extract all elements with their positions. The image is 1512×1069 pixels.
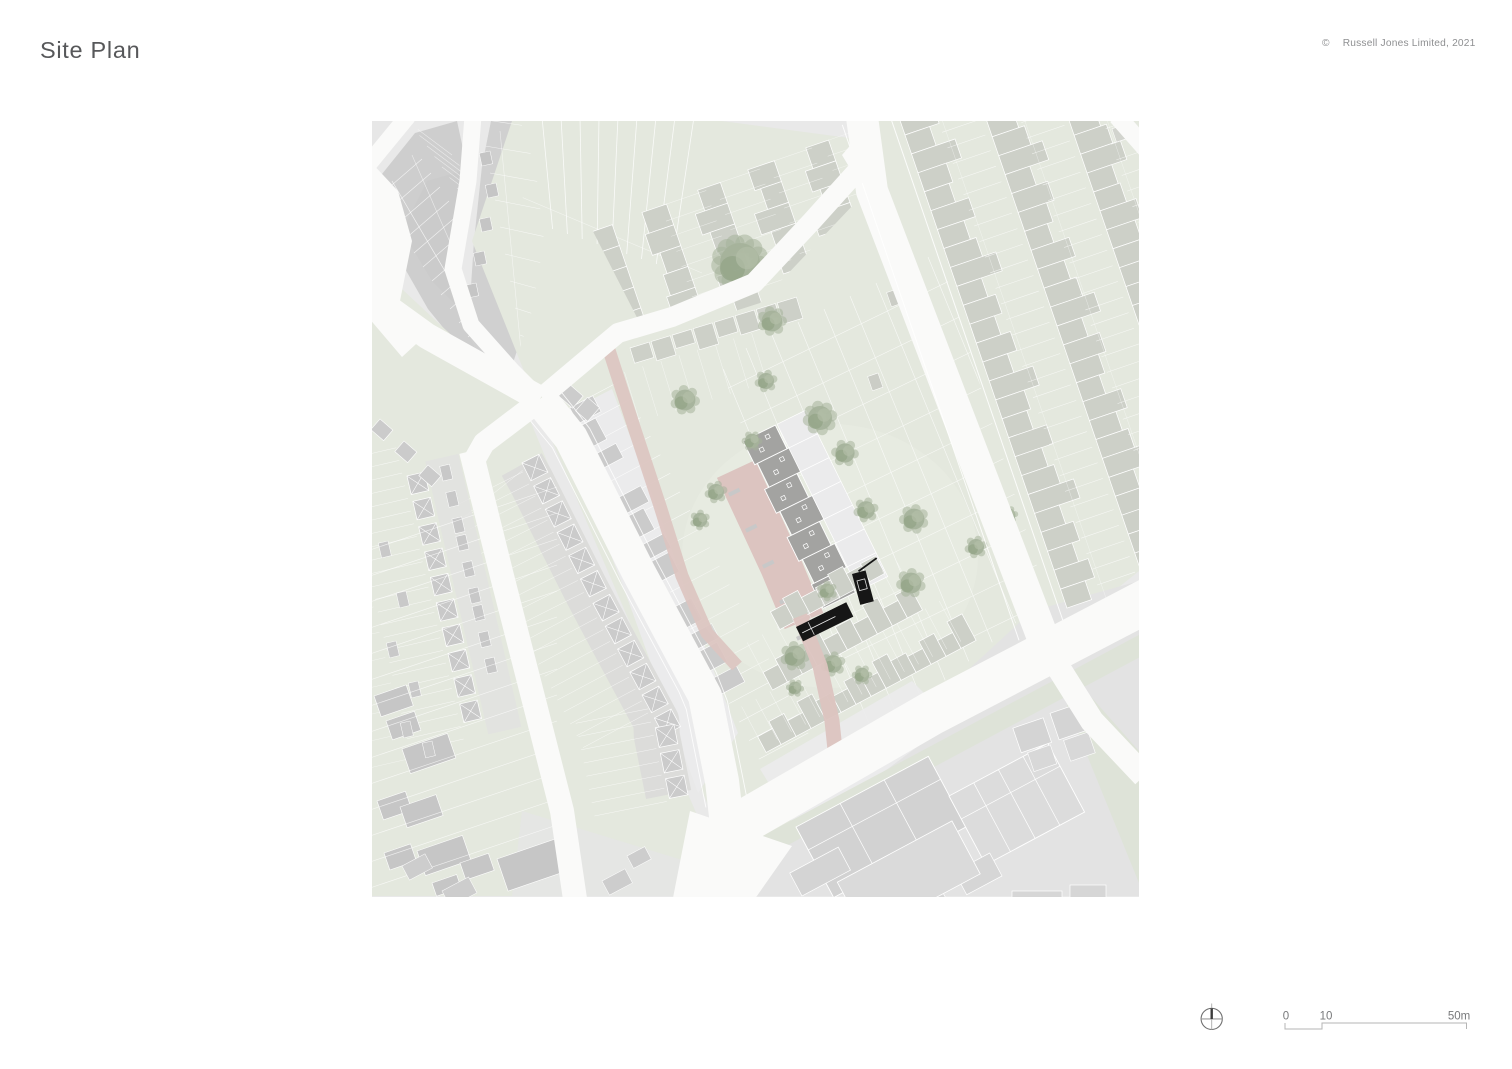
- svg-text:50m: 50m: [1448, 1011, 1470, 1023]
- svg-text:0: 0: [1283, 1011, 1289, 1023]
- svg-text:10: 10: [1320, 1011, 1333, 1023]
